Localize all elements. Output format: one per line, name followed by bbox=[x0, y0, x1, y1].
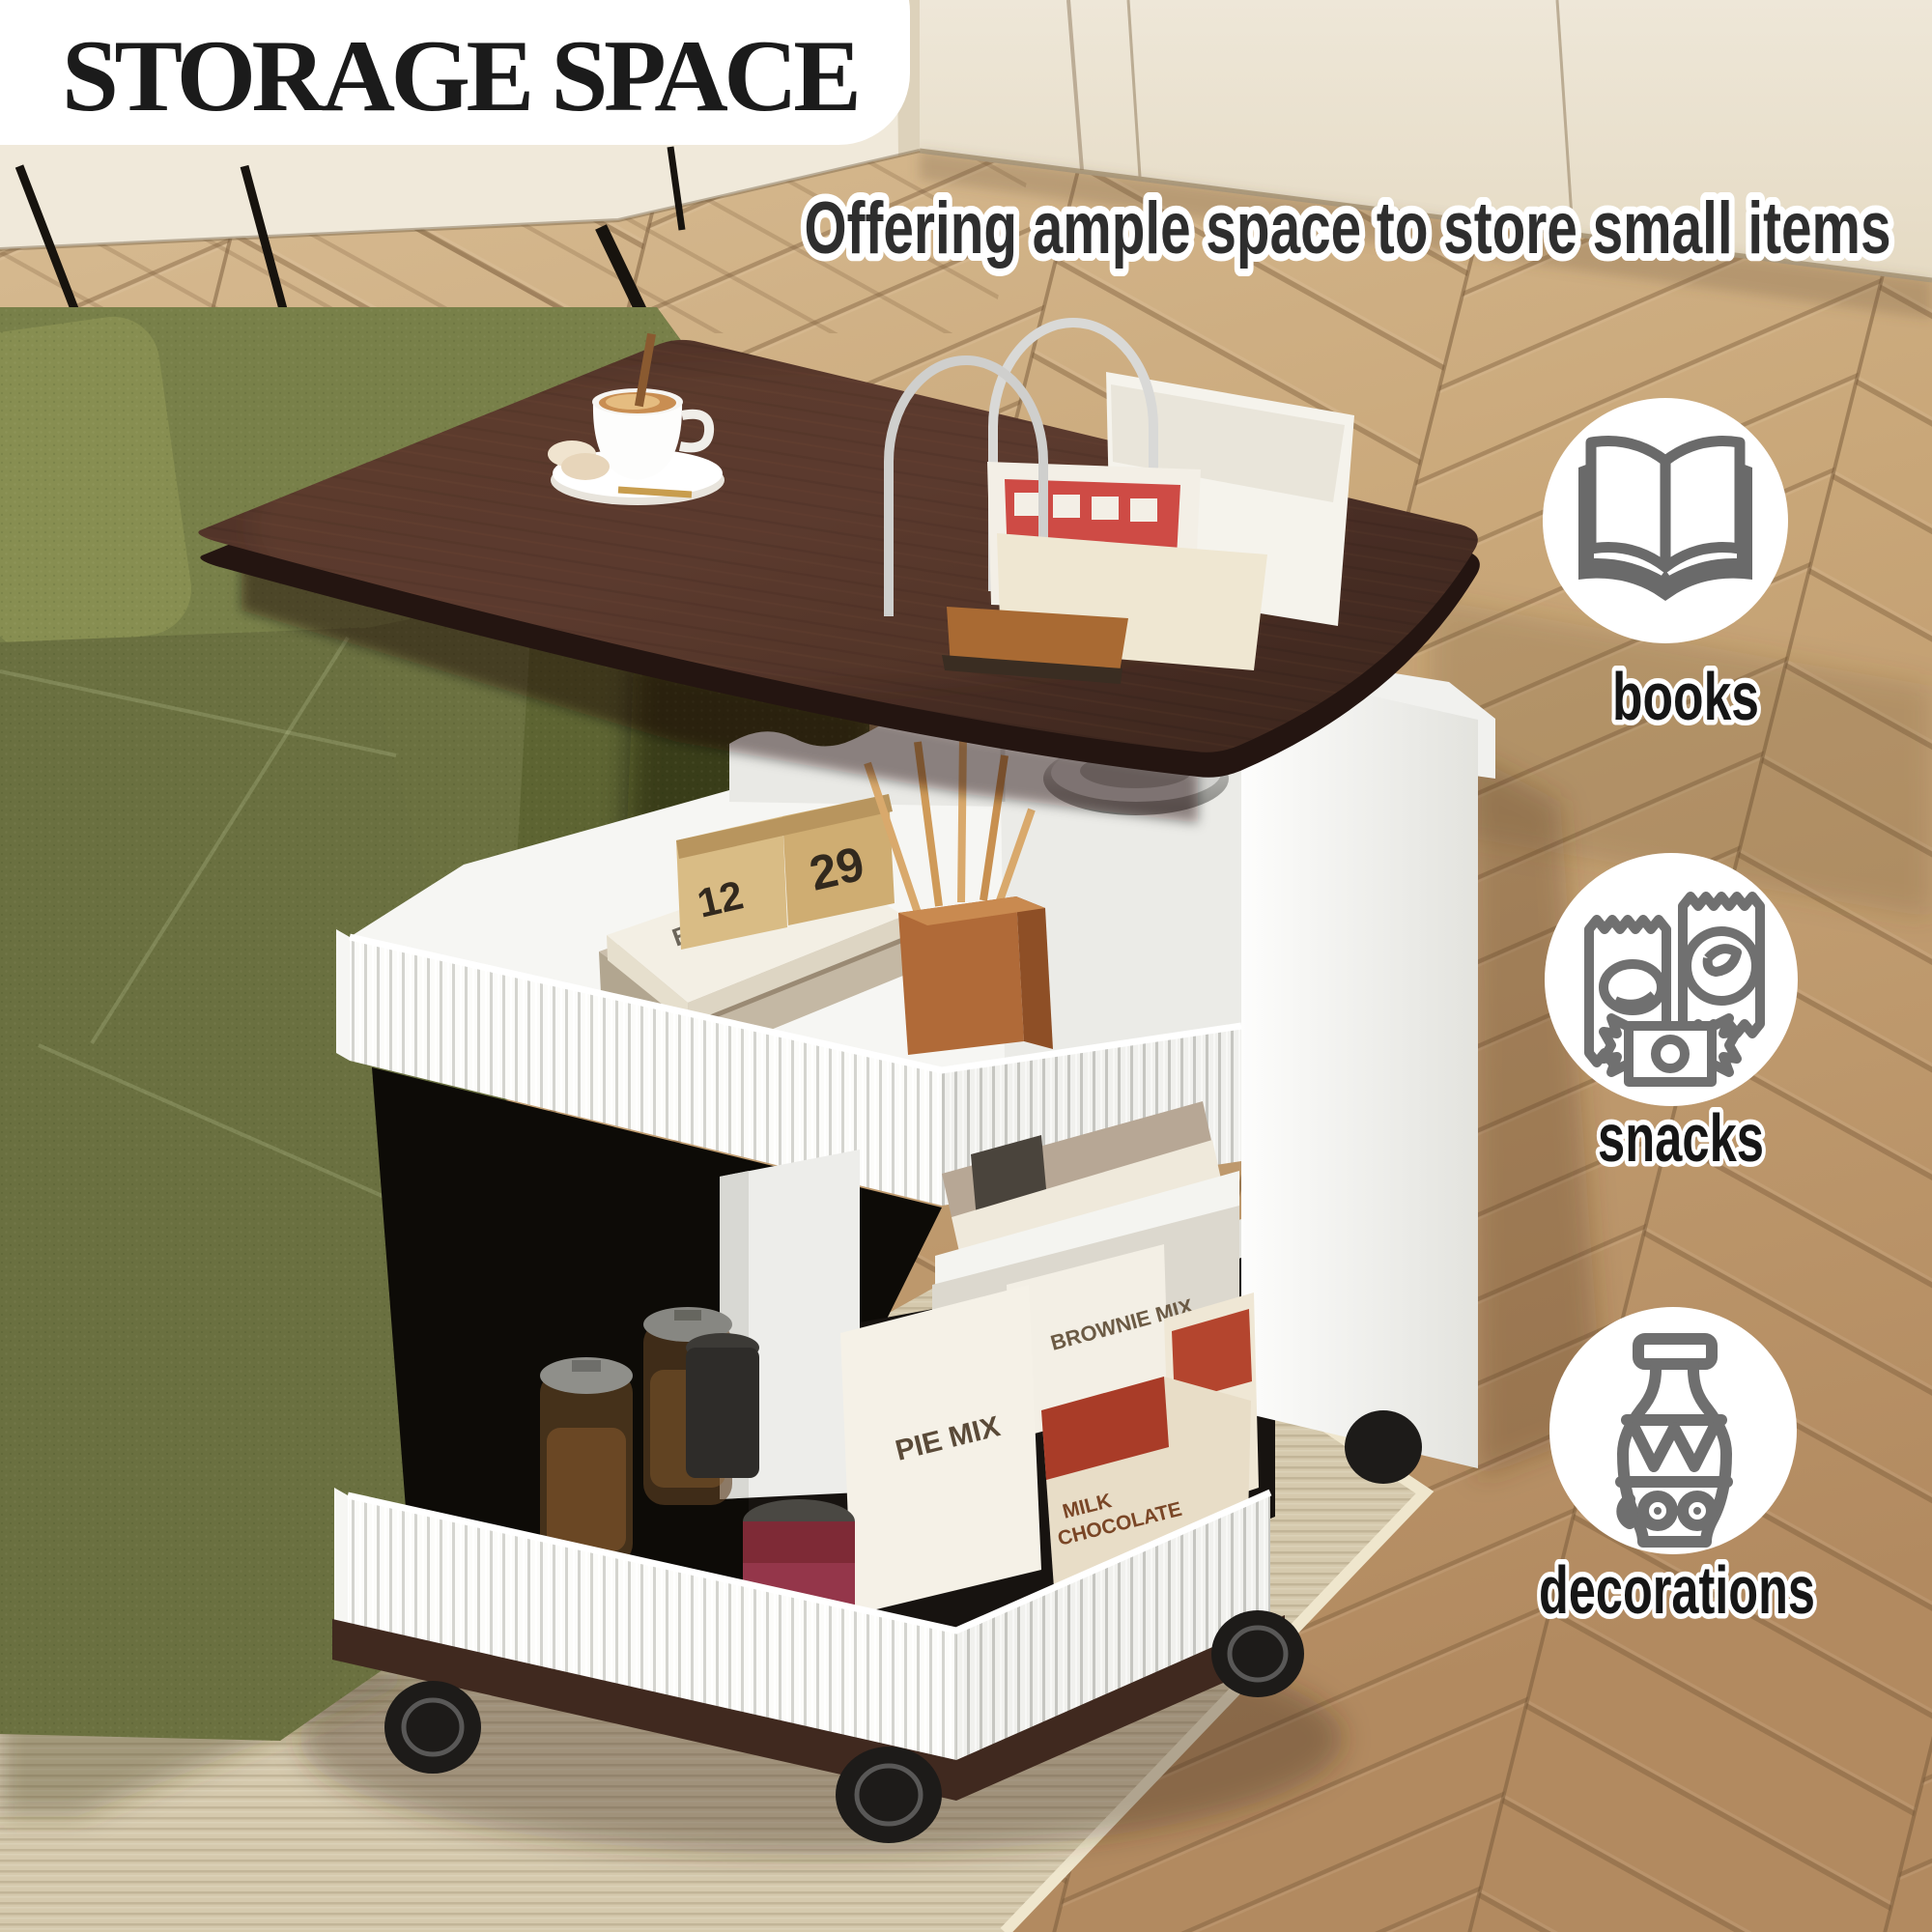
svg-text:STORAGE SPACE: STORAGE SPACE bbox=[62, 19, 866, 132]
svg-text:decorations: decorations bbox=[1539, 1552, 1815, 1628]
svg-text:Offering ample space to store: Offering ample space to store small item… bbox=[805, 187, 1891, 270]
svg-text:books: books bbox=[1612, 659, 1759, 734]
svg-text:snacks: snacks bbox=[1598, 1100, 1764, 1176]
